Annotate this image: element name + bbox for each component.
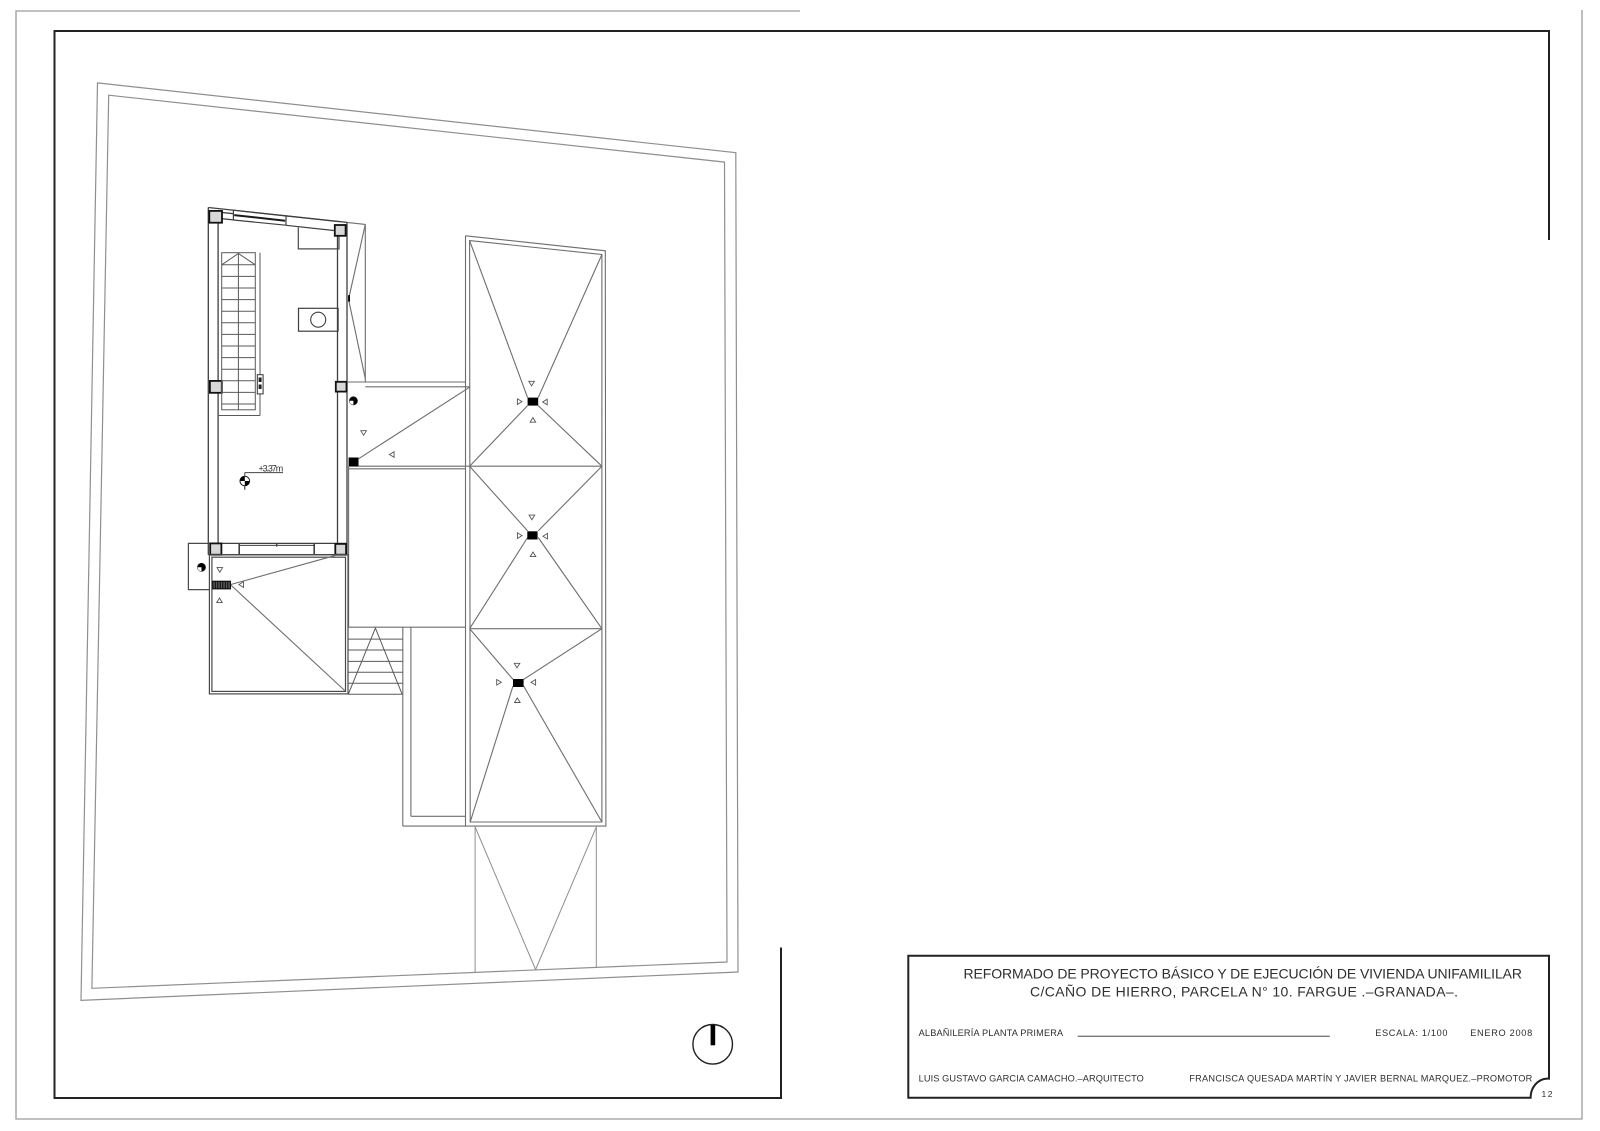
- svg-text:ESCALA: 1/100: ESCALA: 1/100: [1375, 1028, 1447, 1038]
- svg-text:C/CAÑO DE HIERRO, PARCELA N° 1: C/CAÑO DE HIERRO, PARCELA N° 10. FARGUE …: [1030, 983, 1458, 999]
- svg-text:FRANCISCA QUESADA MARTÍN Y JAV: FRANCISCA QUESADA MARTÍN Y JAVIER BERNAL…: [1189, 1074, 1532, 1084]
- svg-text:LUIS GUSTAVO GARCIA CAMACHO.–A: LUIS GUSTAVO GARCIA CAMACHO.–ARQUITECTO: [919, 1074, 1144, 1084]
- svg-text:12: 12: [1542, 1089, 1553, 1099]
- svg-text:ALBAÑILERÍA PLANTA PRIMERA: ALBAÑILERÍA PLANTA PRIMERA: [919, 1028, 1064, 1038]
- svg-text:REFORMADO DE PROYECTO BÁSICO Y: REFORMADO DE PROYECTO BÁSICO Y DE EJECUC…: [964, 966, 1523, 982]
- svg-text:+3.37m: +3.37m: [259, 463, 284, 473]
- svg-text:ENERO 2008: ENERO 2008: [1470, 1028, 1532, 1038]
